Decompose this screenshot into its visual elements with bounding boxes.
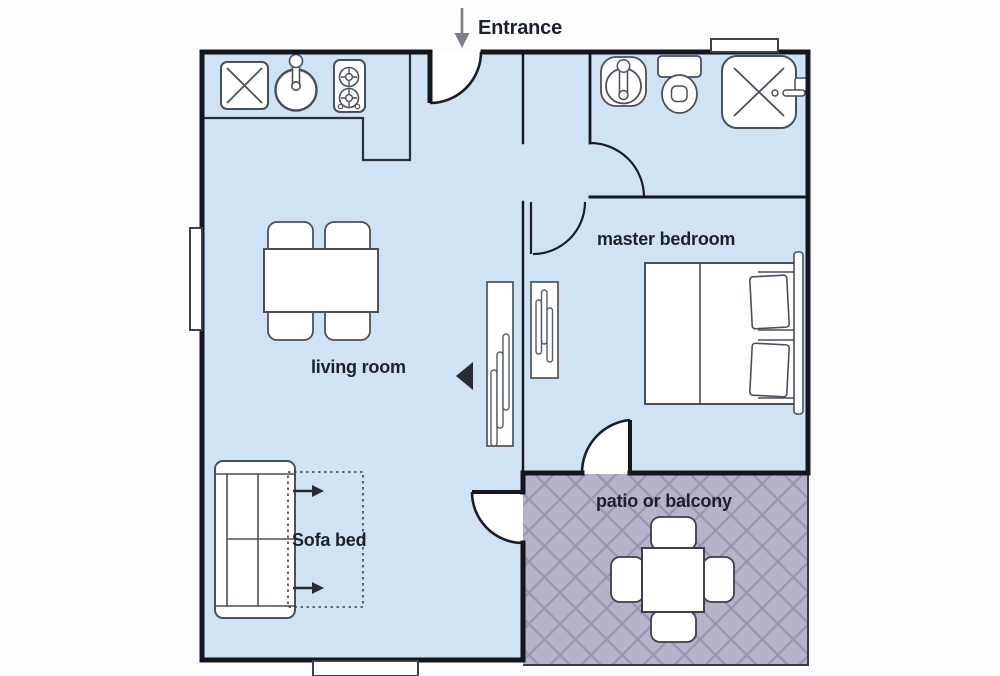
living-room-label: living room xyxy=(311,358,406,376)
shower-icon xyxy=(722,56,808,128)
floor-plan-drawing xyxy=(0,0,1000,676)
patio-table xyxy=(642,548,704,612)
kitchen-cabinet-icon xyxy=(221,62,268,109)
bathroom-sink-icon xyxy=(601,57,646,106)
dining-table xyxy=(264,249,378,312)
patio-label: patio or balcony xyxy=(596,492,732,510)
sofa-bed xyxy=(215,461,295,618)
sofa-bed-label: Sofa bed xyxy=(292,531,366,549)
patio-chair xyxy=(611,557,644,602)
window-bathroom xyxy=(711,39,778,52)
shower-handle xyxy=(783,90,805,96)
pillow xyxy=(750,275,790,329)
window-bottom xyxy=(313,661,418,676)
window-left xyxy=(190,228,202,330)
entrance-arrow-down-icon xyxy=(455,8,470,48)
master-bedroom-label: master bedroom xyxy=(597,230,735,248)
pillow xyxy=(750,343,790,397)
double-bed xyxy=(645,252,803,414)
stove-icon xyxy=(334,60,365,112)
patio-chair xyxy=(703,557,734,602)
toilet-icon xyxy=(658,56,701,113)
entrance-label: Entrance xyxy=(478,18,562,38)
floor-plan: Entrance living room master bedroom Sofa… xyxy=(0,0,1000,676)
headboard xyxy=(794,252,803,414)
patio-chair xyxy=(651,517,696,550)
wardrobe-bedroom-side xyxy=(531,282,558,378)
patio-chair xyxy=(651,611,696,642)
